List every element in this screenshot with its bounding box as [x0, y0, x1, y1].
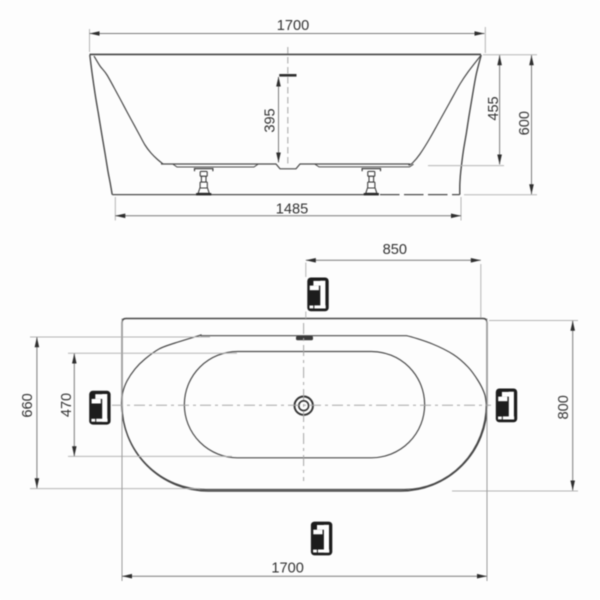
- svg-text:395: 395: [263, 108, 279, 132]
- svg-text:1700: 1700: [277, 18, 309, 34]
- svg-text:800: 800: [556, 395, 572, 419]
- svg-text:1485: 1485: [276, 202, 308, 218]
- svg-text:1700: 1700: [271, 560, 303, 576]
- svg-text:660: 660: [20, 393, 36, 417]
- svg-text:850: 850: [383, 242, 407, 258]
- svg-text:455: 455: [486, 96, 502, 120]
- svg-text:470: 470: [59, 393, 75, 417]
- svg-text:600: 600: [517, 111, 533, 135]
